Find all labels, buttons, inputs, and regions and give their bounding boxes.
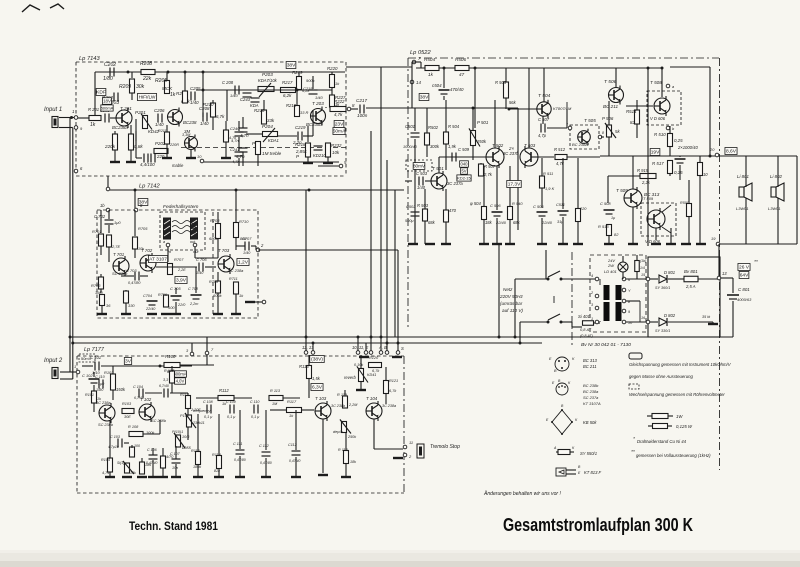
svg-text:KB 50k: KB 50k <box>583 420 597 425</box>
svg-text:6,7/40: 6,7/40 <box>134 396 144 400</box>
svg-text:R500: R500 <box>680 201 690 205</box>
svg-text:5k: 5k <box>615 129 620 134</box>
svg-text:LD 401: LD 401 <box>604 269 617 274</box>
svg-text:0,25: 0,25 <box>674 170 683 175</box>
svg-text:T 203: T 203 <box>312 101 324 106</box>
svg-text:2,2k: 2,2k <box>641 180 651 185</box>
svg-text:T 703: T 703 <box>218 248 230 253</box>
svg-text:R 517: R 517 <box>652 161 664 166</box>
svg-text:100: 100 <box>134 444 140 448</box>
svg-text:1W: 1W <box>676 414 683 419</box>
svg-text:900k: 900k <box>306 78 316 83</box>
svg-text:C 106: C 106 <box>147 448 158 452</box>
svg-text:BC 211: BC 211 <box>583 364 597 369</box>
svg-text:R 511: R 511 <box>543 171 553 176</box>
svg-text:R502: R502 <box>428 125 439 130</box>
svg-text:T 702: T 702 <box>141 248 153 253</box>
svg-text:C217: C217 <box>356 98 367 103</box>
svg-text:Änderungen behalten wir uns: Änderungen behalten wir uns vor ! <box>483 490 561 497</box>
svg-text:R705: R705 <box>138 226 148 231</box>
svg-text:Netz: Netz <box>503 287 513 292</box>
svg-text:38V: 38V <box>287 63 296 69</box>
svg-text:(umrüstbar: (umrüstbar <box>500 301 523 306</box>
svg-text:SC 238a: SC 238a <box>228 268 244 273</box>
svg-text:3V: 3V <box>125 359 132 365</box>
svg-text:1/40: 1/40 <box>315 95 323 100</box>
svg-text:C 703: C 703 <box>126 268 137 273</box>
svg-text:1M: 1M <box>272 402 278 406</box>
svg-text:C 101: C 101 <box>90 355 101 360</box>
svg-text:4,7n: 4,7n <box>236 154 245 159</box>
svg-text:0,8k: 0,8k <box>134 144 143 149</box>
svg-text:10: 10 <box>703 172 708 177</box>
svg-text:T 505: T 505 <box>584 118 596 123</box>
svg-text:C 107: C 107 <box>170 452 181 456</box>
svg-text:82: 82 <box>630 120 635 125</box>
svg-text:80mV: 80mV <box>413 164 426 169</box>
svg-text:Lp 7177: Lp 7177 <box>84 347 105 353</box>
svg-text:R211: R211 <box>158 129 167 133</box>
svg-text:C707: C707 <box>242 236 252 241</box>
svg-text:out: out <box>193 249 199 254</box>
svg-text:1M treble: 1M treble <box>262 151 282 156</box>
svg-text:A, B: A, B <box>378 345 387 350</box>
svg-text:R514: R514 <box>626 109 637 114</box>
svg-text:(1b): (1b) <box>640 259 646 263</box>
svg-text:14: 14 <box>416 80 421 85</box>
svg-text:R504: R504 <box>424 57 435 62</box>
svg-text:R208: R208 <box>140 61 152 67</box>
svg-text:30k: 30k <box>136 84 145 90</box>
svg-text:R506: R506 <box>455 57 466 62</box>
svg-text:Si(1): Si(1) <box>117 461 124 465</box>
svg-text:0,1 μ: 0,1 μ <box>204 415 212 419</box>
svg-text:R 915: R 915 <box>637 168 649 173</box>
svg-text:R218: R218 <box>295 142 306 147</box>
svg-text:S: S <box>401 346 404 351</box>
svg-text:L3W01: L3W01 <box>768 206 781 211</box>
svg-text:1/80: 1/80 <box>96 388 104 392</box>
svg-text:4000/63: 4000/63 <box>737 297 752 302</box>
svg-text:Input 1: Input 1 <box>44 107 62 113</box>
svg-text:R222: R222 <box>334 99 345 104</box>
svg-text:C 801: C 801 <box>738 287 750 292</box>
svg-text:SC 238b: SC 238b <box>151 419 167 423</box>
svg-text:10n: 10n <box>172 466 178 470</box>
svg-text:17,3V: 17,3V <box>508 182 521 188</box>
svg-text:22/40: 22/40 <box>145 307 156 311</box>
svg-text:P(10)1: P(10)1 <box>172 430 183 434</box>
svg-text:1,9k: 1,9k <box>448 144 457 149</box>
svg-text:HiFi/LW: HiFi/LW <box>139 95 156 101</box>
svg-text:BC 211: BC 211 <box>603 104 618 109</box>
svg-text:BC238: BC238 <box>183 120 197 125</box>
svg-text:T 503: T 503 <box>524 143 536 148</box>
svg-text:T 502: T 502 <box>492 143 504 148</box>
svg-text:R104: R104 <box>101 458 110 462</box>
svg-text:R218: R218 <box>254 108 265 113</box>
svg-text:0,47/40: 0,47/40 <box>289 459 300 463</box>
svg-text:C 509: C 509 <box>458 147 470 152</box>
svg-text:C704: C704 <box>143 294 152 298</box>
svg-text:C 111: C 111 <box>233 442 242 446</box>
svg-text:C 505: C 505 <box>533 204 544 209</box>
svg-text:T 103: T 103 <box>315 396 327 401</box>
svg-text:1/4: 1/4 <box>640 266 645 270</box>
svg-text:0,10k: 0,10k <box>354 363 364 367</box>
svg-text:Bv Nr 30 042 01 - 7130: Bv Nr 30 042 01 - 7130 <box>581 342 631 348</box>
svg-text:18k: 18k <box>485 220 493 225</box>
svg-text:1k: 1k <box>428 72 434 77</box>
svg-text:1/40: 1/40 <box>243 251 251 255</box>
svg-text:50mA: 50mA <box>333 129 346 135</box>
svg-text:R217: R217 <box>282 80 293 85</box>
svg-text:Li 802: Li 802 <box>770 174 783 179</box>
svg-text:R703: R703 <box>91 283 101 288</box>
svg-text:R 513: R 513 <box>598 224 609 229</box>
svg-text:bass: bass <box>182 445 191 450</box>
svg-text:33 R: 33 R <box>300 110 308 115</box>
svg-text:C 112: C 112 <box>259 444 270 448</box>
svg-text:220V 50Hz: 220V 50Hz <box>499 294 524 299</box>
svg-text:680k: 680k <box>209 236 219 241</box>
svg-text:C219: C219 <box>295 125 306 130</box>
svg-text:4,7p: 4,7p <box>538 133 547 138</box>
svg-text:R220: R220 <box>327 66 338 71</box>
svg-text:23V: 23V <box>335 122 344 128</box>
svg-text:C511: C511 <box>556 203 565 207</box>
svg-text:R209: R209 <box>119 84 131 90</box>
svg-text:1μ0: 1μ0 <box>114 220 121 225</box>
svg-text:3C 238a: 3C 238a <box>382 404 396 408</box>
svg-text:SC 238b: SC 238b <box>98 423 114 427</box>
svg-text:12, 13: 12, 13 <box>302 345 314 350</box>
svg-text:C 503: C 503 <box>416 171 428 176</box>
svg-text:R 201: R 201 <box>88 107 99 112</box>
svg-text:R100: R100 <box>165 354 176 359</box>
svg-text:dep!h: dep!h <box>333 430 343 434</box>
svg-text:38V: 38V <box>420 95 429 101</box>
svg-text:1/40: 1/40 <box>196 271 204 275</box>
svg-text:1/40: 1/40 <box>155 122 164 127</box>
svg-text:1/40: 1/40 <box>200 121 209 126</box>
svg-text:C 506: C 506 <box>490 203 501 208</box>
svg-text:R111: R111 <box>180 393 189 397</box>
svg-text:KT 3107A: KT 3107A <box>583 401 601 406</box>
svg-text:Wechselspannung gemessen mit R: Wechselspannung gemessen mit Röhrenvoltm… <box>629 392 725 397</box>
svg-text:a: a <box>163 240 165 244</box>
svg-text:0,25: 0,25 <box>674 138 683 143</box>
svg-text:1: 1 <box>591 317 593 321</box>
svg-text:R218: R218 <box>286 103 297 108</box>
svg-text:100n: 100n <box>357 113 368 118</box>
svg-text:Lp 0522: Lp 0522 <box>410 50 431 56</box>
svg-text:gegen Masse ohne Aussteuerung: gegen Masse ohne Aussteuerung <box>629 374 693 379</box>
svg-text:BC 238b: BC 238b <box>583 383 599 388</box>
svg-text:6,7/40: 6,7/40 <box>159 384 169 388</box>
svg-text:gemessen bei Vollaussteuerung: gemessen bei Vollaussteuerung (1kHz) <box>636 453 711 458</box>
svg-text:P204: P204 <box>262 124 273 129</box>
svg-text:2,2E: 2,2E <box>177 268 186 272</box>
svg-text:R 108: R 108 <box>128 425 139 429</box>
svg-text:3M0: 3M0 <box>95 290 103 295</box>
svg-text:3,9V: 3,9V <box>176 278 187 284</box>
svg-text:3C 238b: 3C 238b <box>331 404 345 408</box>
svg-text:26 V: 26 V <box>739 265 750 271</box>
svg-text:2×1000/40: 2×1000/40 <box>677 145 698 150</box>
svg-text:R 119: R 119 <box>337 393 348 397</box>
svg-text:22/40: 22/40 <box>541 220 553 225</box>
svg-text:68k: 68k <box>428 220 436 225</box>
svg-text:230k11: 230k11 <box>192 421 205 425</box>
svg-text:SY 330/1: SY 330/1 <box>655 329 670 333</box>
svg-text:reverb: reverb <box>344 375 356 380</box>
svg-text:6,7k: 6,7k <box>216 114 225 119</box>
svg-text:10/3: 10/3 <box>182 435 190 439</box>
svg-text:BC 313: BC 313 <box>583 358 598 363</box>
svg-text:KD210: KD210 <box>313 153 326 158</box>
svg-text:220R: 220R <box>169 143 179 147</box>
svg-text:KD41: KD41 <box>367 373 376 377</box>
svg-text:C 109: C 109 <box>226 400 236 404</box>
svg-text:0,1 μ: 0,1 μ <box>227 415 235 419</box>
svg-text:C 708: C 708 <box>188 287 199 291</box>
svg-text:100: 100 <box>168 305 175 310</box>
svg-text:Lp 7143: Lp 7143 <box>79 56 100 62</box>
svg-text:R 505: R 505 <box>495 80 507 85</box>
svg-text:2,2m: 2,2m <box>189 302 198 306</box>
svg-text:9: 9 <box>628 310 630 314</box>
svg-text:10k: 10k <box>332 150 340 155</box>
svg-text:SC 237a: SC 237a <box>583 395 599 400</box>
svg-text:0,8 AT: 0,8 AT <box>580 327 592 332</box>
svg-text:Techn. Stand 1981: Techn. Stand 1981 <box>129 521 219 533</box>
svg-text:R 540: R 540 <box>512 201 523 206</box>
svg-text:150k: 150k <box>116 387 126 392</box>
svg-text:3C 237b: 3C 237b <box>503 151 519 156</box>
svg-text:R116: R116 <box>299 364 309 369</box>
svg-text:C 104: C 104 <box>133 385 143 389</box>
svg-text:P102: P102 <box>180 414 190 418</box>
svg-text:68k: 68k <box>513 220 521 225</box>
svg-text:Input 2: Input 2 <box>44 358 63 364</box>
svg-text:C502: C502 <box>406 204 416 209</box>
svg-text:T 508: T 508 <box>650 80 662 85</box>
svg-text:3C 237a: 3C 237a <box>447 181 463 186</box>
svg-text:040: 040 <box>461 161 469 166</box>
svg-text:Bv 801: Bv 801 <box>684 269 698 274</box>
svg-text:R205: R205 <box>155 78 167 84</box>
svg-text:P203: P203 <box>262 72 273 77</box>
svg-text:0,47/80: 0,47/80 <box>128 281 141 285</box>
svg-text:250k: 250k <box>476 139 487 144</box>
svg-text:500mA: 500mA <box>101 105 114 110</box>
svg-text:19V: 19V <box>651 150 660 156</box>
svg-text:Gleichspannung gemessen mit In: Gleichspannung gemessen mit Instrument 1… <box>629 362 732 367</box>
svg-text:KDA1: KDA1 <box>268 138 279 143</box>
svg-text:R710: R710 <box>239 219 249 224</box>
svg-text:R 118: R 118 <box>338 448 349 452</box>
svg-text:R706: R706 <box>158 293 168 297</box>
svg-text:3C 238a: 3C 238a <box>96 401 111 405</box>
svg-text:R708: R708 <box>210 218 220 223</box>
svg-text:C 702: C 702 <box>94 214 106 219</box>
svg-text:R103: R103 <box>122 402 132 406</box>
svg-text:2,7E: 2,7E <box>111 244 120 249</box>
svg-text:Lp 7142: Lp 7142 <box>139 184 160 190</box>
svg-text:frequency: frequency <box>193 408 211 413</box>
svg-text:C 508: C 508 <box>600 201 611 206</box>
svg-text:R 107: R 107 <box>164 369 175 373</box>
svg-text:C241: C241 <box>230 147 239 152</box>
svg-text:KT 813 F: KT 813 F <box>584 470 602 475</box>
svg-text:Gesamtstromlaufplan 300 K: Gesamtstromlaufplan 300 K <box>503 514 693 535</box>
svg-text:10k: 10k <box>130 471 136 475</box>
svg-text:KDA: KDA <box>250 103 259 108</box>
svg-text:220k: 220k <box>104 144 116 149</box>
svg-text:Drahtwiderstand Cu Ni 44: Drahtwiderstand Cu Ni 44 <box>637 439 687 444</box>
svg-text:KT807/1M: KT807/1M <box>553 106 572 111</box>
svg-text:C243: C243 <box>240 97 251 102</box>
svg-text:BC 238A: BC 238A <box>572 142 588 147</box>
svg-text:C501: C501 <box>405 124 415 129</box>
svg-text:5V: 5V <box>461 168 466 173</box>
svg-text:R707: R707 <box>174 257 184 262</box>
svg-text:Li 801: Li 801 <box>737 174 750 179</box>
svg-text:300k: 300k <box>430 144 440 149</box>
svg-text:R232: R232 <box>331 143 342 148</box>
svg-text:C202: C202 <box>104 62 116 68</box>
svg-text:250k: 250k <box>347 435 357 439</box>
svg-text:6,7k: 6,7k <box>372 369 380 373</box>
svg-text:R120: R120 <box>369 356 379 360</box>
svg-text:T 509: T 509 <box>616 188 628 193</box>
svg-text:3,3M: 3,3M <box>182 133 191 137</box>
svg-text:2,85k: 2,85k <box>295 149 308 154</box>
svg-text:SY 360/1: SY 360/1 <box>655 286 670 290</box>
svg-text:P201: P201 <box>135 110 146 115</box>
svg-text:C 507: C 507 <box>538 117 550 122</box>
svg-text:18V: 18V <box>103 98 111 103</box>
svg-text:1/40: 1/40 <box>190 100 199 105</box>
svg-text:470/40: 470/40 <box>450 87 464 92</box>
svg-text:2,5 A: 2,5 A <box>685 284 696 289</box>
svg-text:4,0V: 4,0V <box>176 378 185 383</box>
svg-text:8: 8 <box>602 131 604 135</box>
svg-text:1,5k: 1,5k <box>312 376 321 381</box>
svg-text:1b: 1b <box>100 203 105 208</box>
svg-text:6,7k: 6,7k <box>389 389 397 393</box>
svg-text:500μ: 500μ <box>405 219 414 223</box>
svg-text:T 501: T 501 <box>432 166 444 171</box>
svg-text:MCK: MCK <box>162 86 173 91</box>
svg-text:56k: 56k <box>509 100 517 105</box>
svg-text:R701: R701 <box>92 229 101 234</box>
svg-text:6,3V: 6,3V <box>312 385 323 391</box>
svg-text:R 510: R 510 <box>654 132 666 137</box>
svg-text:470: 470 <box>449 208 457 213</box>
svg-text:13: 13 <box>722 271 727 276</box>
svg-text:35 kt: 35 kt <box>702 315 711 319</box>
svg-text:47: 47 <box>459 72 465 77</box>
svg-text:(38V): (38V) <box>311 357 323 363</box>
svg-text:4,7k: 4,7k <box>334 112 343 117</box>
svg-text:22k: 22k <box>142 76 152 82</box>
svg-text:300mA: 300mA <box>173 371 186 376</box>
svg-text:R101: R101 <box>85 393 94 397</box>
svg-text:KDA7/10k: KDA7/10k <box>258 78 278 83</box>
svg-text:1,2V: 1,2V <box>238 260 249 266</box>
svg-text:mable: mable <box>172 163 184 168</box>
svg-text:64V: 64V <box>740 273 749 279</box>
svg-text:10, 11, E: 10, 11, E <box>352 345 369 350</box>
svg-text:BC 238a: BC 238a <box>583 389 599 394</box>
svg-text:20: 20 <box>709 147 715 152</box>
svg-text:30E: 30E <box>124 415 131 419</box>
svg-text:1μ: 1μ <box>611 216 615 220</box>
svg-text:φ 504: φ 504 <box>470 201 481 206</box>
svg-text:R210: R210 <box>203 102 214 107</box>
svg-text:R219: R219 <box>292 70 303 75</box>
svg-text:KD2-15: KD2-15 <box>457 175 471 180</box>
svg-text:R711: R711 <box>229 277 238 281</box>
svg-text:22/0: 22/0 <box>177 303 186 307</box>
svg-text:1/80: 1/80 <box>103 76 113 82</box>
svg-text:1/40: 1/40 <box>230 93 238 98</box>
svg-text:C 110: C 110 <box>95 375 106 379</box>
svg-text:auf 110 V): auf 110 V) <box>502 308 523 313</box>
svg-text:T 506: T 506 <box>604 79 617 85</box>
svg-text:C 108: C 108 <box>203 400 213 404</box>
svg-text:0,125 W: 0,125 W <box>676 424 693 429</box>
svg-text:C 110: C 110 <box>250 400 259 404</box>
svg-text:Federhallsystem: Federhallsystem <box>163 204 198 210</box>
svg-text:1k: 1k <box>90 122 96 128</box>
svg-text:D 802: D 802 <box>664 313 676 318</box>
svg-text:1k: 1k <box>170 92 176 98</box>
svg-text:4: 4 <box>591 274 593 278</box>
svg-text:R 512: R 512 <box>554 147 566 152</box>
svg-text:T 104: T 104 <box>366 396 378 401</box>
svg-text:0,1 μ: 0,1 μ <box>251 415 259 419</box>
svg-text:8,6V: 8,6V <box>726 149 737 155</box>
svg-text:4,74: 4,74 <box>102 471 109 475</box>
svg-text:R 113: R 113 <box>270 389 281 393</box>
svg-text:1: 1 <box>74 364 76 369</box>
svg-text:R709: R709 <box>209 280 218 284</box>
svg-text:c504: c504 <box>432 83 442 88</box>
svg-text:1,9 K: 1,9 K <box>545 186 555 191</box>
svg-text:L3W01: L3W01 <box>736 206 749 211</box>
svg-text:C 103: C 103 <box>110 435 121 439</box>
svg-text:220: 220 <box>579 207 587 211</box>
svg-text:R113: R113 <box>191 449 201 453</box>
svg-text:C206: C206 <box>154 108 165 113</box>
svg-text:6,2k: 6,2k <box>283 93 292 98</box>
svg-text:Si 401: Si 401 <box>578 314 590 319</box>
svg-text:C 706: C 706 <box>196 257 207 262</box>
svg-text:BC238a: BC238a <box>112 125 128 130</box>
svg-text:R117: R117 <box>287 399 297 404</box>
svg-text:R 504: R 504 <box>448 124 460 129</box>
svg-text:R112: R112 <box>219 388 229 393</box>
svg-text:R 503: R 503 <box>417 203 429 208</box>
svg-text:C 208: C 208 <box>222 80 234 85</box>
svg-text:0,47/40: 0,47/40 <box>146 461 157 465</box>
svg-text:4,4/100: 4,4/100 <box>140 162 155 167</box>
svg-text:11: 11 <box>409 440 413 445</box>
svg-text:4,7n: 4,7n <box>231 138 239 143</box>
